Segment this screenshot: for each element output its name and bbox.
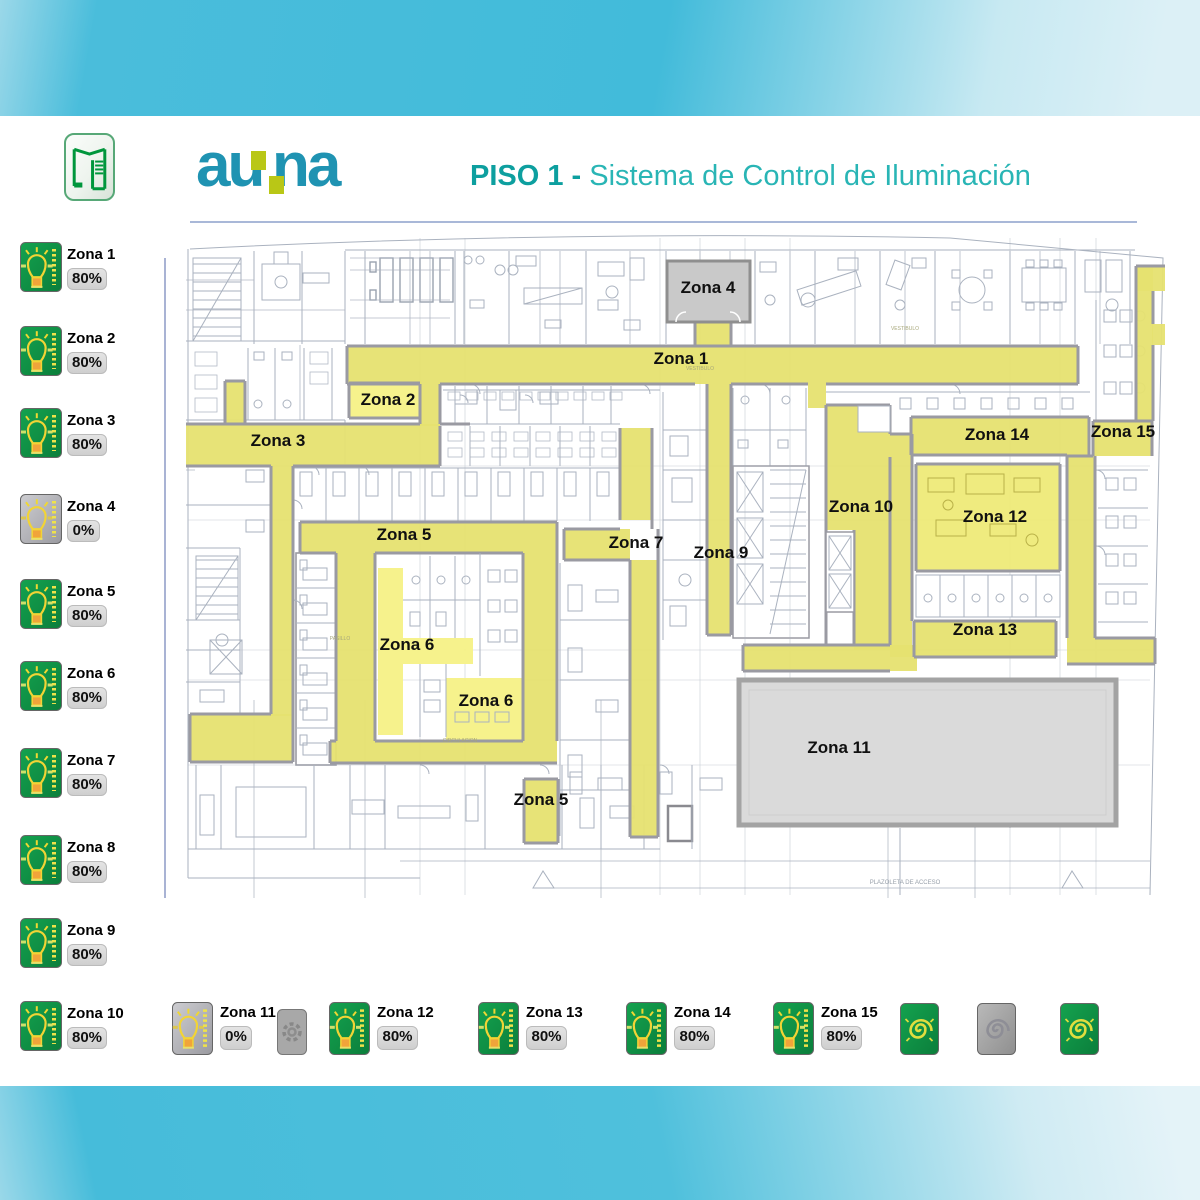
svg-text:Zona 6: Zona 6 — [380, 635, 435, 654]
svg-text:Zona 4: Zona 4 — [681, 278, 736, 297]
svg-text:Zona 12: Zona 12 — [963, 507, 1027, 526]
svg-text:VESTIBULO: VESTIBULO — [891, 326, 919, 332]
svg-text:Zona 3: Zona 3 — [251, 431, 306, 450]
svg-text:Zona 5: Zona 5 — [514, 790, 569, 809]
svg-text:PLAZOLETA DE ACCESO: PLAZOLETA DE ACCESO — [870, 880, 941, 886]
svg-text:CIRCULACION: CIRCULACION — [443, 738, 478, 744]
svg-text:Zona 1: Zona 1 — [654, 349, 709, 368]
svg-text:Zona 11: Zona 11 — [807, 738, 870, 757]
svg-text:Zona 9: Zona 9 — [694, 543, 749, 562]
svg-text:Zona 5: Zona 5 — [377, 525, 432, 544]
svg-text:Zona 2: Zona 2 — [361, 390, 416, 409]
svg-text:Zona 14: Zona 14 — [965, 425, 1030, 444]
svg-text:Zona 13: Zona 13 — [953, 620, 1017, 639]
svg-text:Zona 7: Zona 7 — [609, 533, 664, 552]
svg-text:PASILLO: PASILLO — [330, 636, 351, 642]
svg-text:Zona 10: Zona 10 — [829, 497, 893, 516]
svg-text:Zona 6: Zona 6 — [459, 691, 514, 710]
svg-text:Zona 15: Zona 15 — [1091, 422, 1155, 441]
